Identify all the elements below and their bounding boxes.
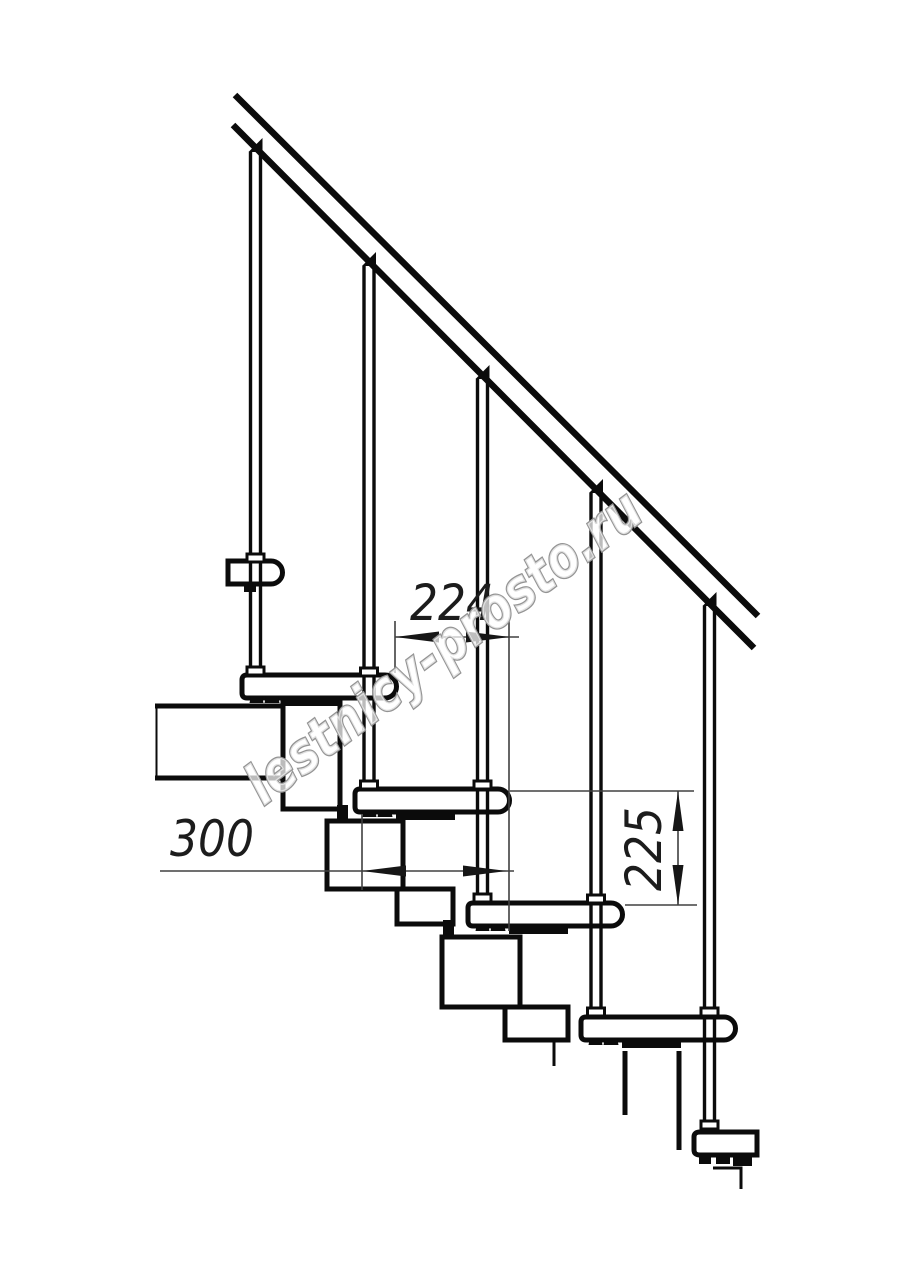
staircase-drawing-canvas: 224 300 225 lestnicy-prosto.ru: [0, 0, 914, 1280]
spine-module-3: [442, 937, 520, 1007]
spine-module-2b: [397, 889, 453, 924]
spine-module-3b: [505, 1007, 568, 1040]
handrail: [233, 95, 758, 648]
dim-300-arrow-right: [463, 866, 507, 877]
bottom-step-cut-line: [713, 1168, 741, 1189]
baluster-5: [701, 592, 718, 1129]
spine-module-2: [327, 821, 403, 889]
tread-0: [228, 561, 283, 592]
tread-4: [581, 1017, 736, 1048]
dim-225-arrow-down: [673, 865, 684, 905]
dim-300-label: 300: [170, 810, 254, 868]
spine-module-4: [625, 1051, 679, 1150]
dimension-225: 225: [510, 791, 697, 905]
staircase-drawing: 224 300 225 lestnicy-prosto.ru: [0, 0, 914, 1280]
baluster-1: [247, 138, 264, 675]
dim-225-arrow-up: [673, 791, 684, 831]
dim-225-label: 225: [615, 807, 673, 891]
tread-5: [694, 1132, 757, 1166]
